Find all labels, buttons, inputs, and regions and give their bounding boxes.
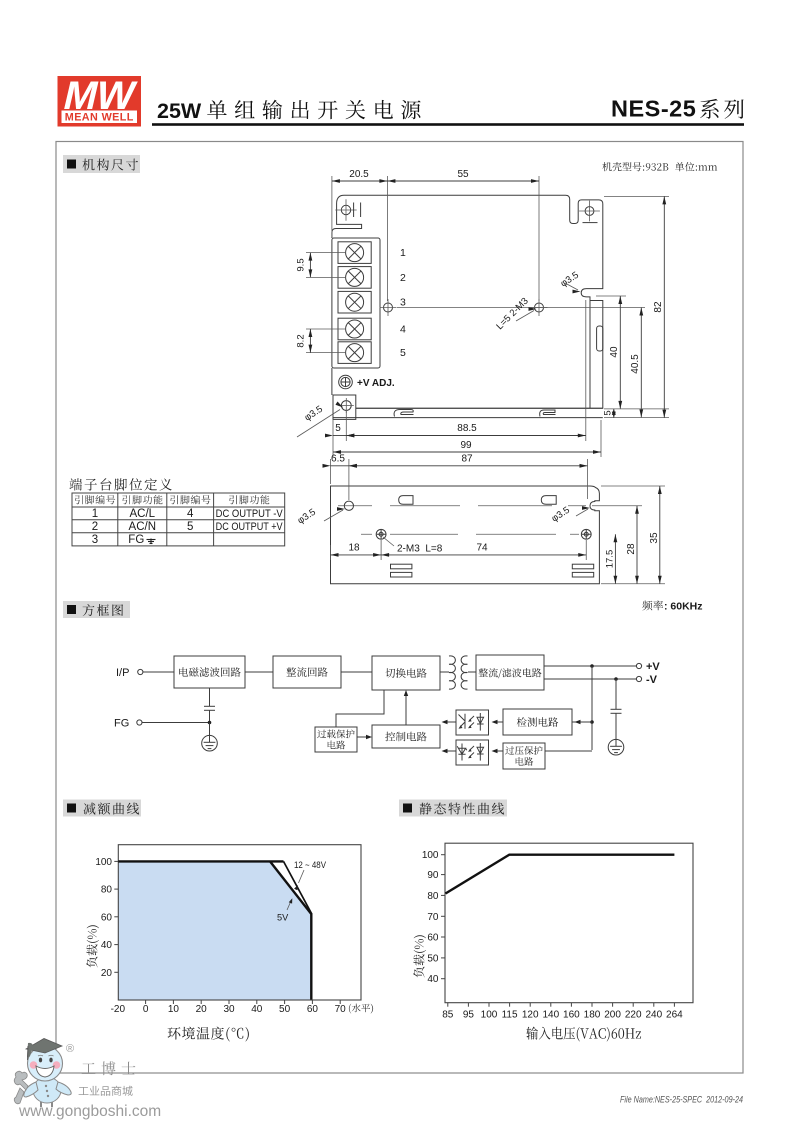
svg-text:90: 90 <box>427 870 439 881</box>
svg-text:20: 20 <box>101 968 113 979</box>
svg-text:60: 60 <box>101 912 113 923</box>
svg-text:85: 85 <box>442 1010 454 1021</box>
svg-text:17.5: 17.5 <box>604 550 615 569</box>
svg-text:40.5: 40.5 <box>630 354 641 374</box>
svg-text:95: 95 <box>463 1010 475 1021</box>
svg-text:2: 2 <box>92 521 98 533</box>
svg-text:50: 50 <box>279 1004 291 1015</box>
svg-text:87: 87 <box>461 454 473 465</box>
svg-text:File Name:NES-25-SPEC 2012-09: File Name:NES-25-SPEC 2012-09-24 <box>620 1095 743 1105</box>
svg-text:18: 18 <box>348 543 360 554</box>
svg-text:30: 30 <box>223 1004 235 1015</box>
svg-text:www.gongboshi.com: www.gongboshi.com <box>18 1103 161 1120</box>
svg-text:1: 1 <box>400 247 406 259</box>
svg-text:6.5: 6.5 <box>331 454 345 465</box>
svg-text:55: 55 <box>457 169 469 180</box>
svg-text:140: 140 <box>542 1010 559 1021</box>
svg-text:115: 115 <box>502 1010 518 1021</box>
svg-text:100: 100 <box>422 850 439 861</box>
svg-text:: 60KHz: : 60KHz <box>664 601 703 613</box>
svg-text:40: 40 <box>101 940 113 951</box>
svg-text:12 ~ 48V: 12 ~ 48V <box>294 860 327 870</box>
svg-text:220: 220 <box>625 1010 642 1021</box>
svg-text:50: 50 <box>427 953 439 964</box>
svg-text:AC/N: AC/N <box>129 521 156 533</box>
svg-text:88.5: 88.5 <box>457 423 477 434</box>
svg-text:®: ® <box>66 1043 74 1055</box>
svg-text:4: 4 <box>400 324 406 336</box>
svg-text:I/P: I/P <box>116 667 129 679</box>
svg-text:120: 120 <box>522 1010 539 1021</box>
svg-text:25W: 25W <box>157 99 202 123</box>
svg-text:DC OUTPUT -V: DC OUTPUT -V <box>216 508 284 520</box>
svg-text:40: 40 <box>427 974 439 985</box>
svg-text:100: 100 <box>481 1010 498 1021</box>
svg-text:3: 3 <box>92 534 98 546</box>
svg-text:5: 5 <box>187 521 193 533</box>
svg-text:240: 240 <box>645 1010 662 1021</box>
svg-text:35: 35 <box>649 532 660 544</box>
svg-text:2: 2 <box>400 272 406 284</box>
svg-text:10: 10 <box>168 1004 180 1015</box>
svg-text:180: 180 <box>584 1010 601 1021</box>
svg-text:200: 200 <box>604 1010 621 1021</box>
svg-text:9.5: 9.5 <box>296 258 307 271</box>
svg-text:74: 74 <box>476 543 488 554</box>
svg-text:264: 264 <box>666 1010 683 1021</box>
svg-text:+V ADJ.: +V ADJ. <box>357 378 395 389</box>
svg-text:28: 28 <box>626 543 637 555</box>
svg-text:60: 60 <box>427 933 439 944</box>
svg-text:82: 82 <box>653 301 664 313</box>
svg-text:20: 20 <box>196 1004 208 1015</box>
svg-text:60: 60 <box>307 1004 319 1015</box>
svg-text:99: 99 <box>460 440 472 451</box>
svg-text:80: 80 <box>427 891 439 902</box>
svg-text:100: 100 <box>95 857 112 868</box>
svg-text:5V: 5V <box>277 913 289 923</box>
svg-text:DC OUTPUT +V: DC OUTPUT +V <box>216 521 284 533</box>
svg-text:8.2: 8.2 <box>296 334 307 347</box>
svg-text:70: 70 <box>427 912 439 923</box>
svg-text:70: 70 <box>335 1004 347 1015</box>
svg-text:1: 1 <box>92 508 98 520</box>
svg-text:20.5: 20.5 <box>349 169 369 180</box>
svg-text:160: 160 <box>563 1010 580 1021</box>
svg-text:5: 5 <box>335 423 341 434</box>
svg-text:5: 5 <box>400 347 406 359</box>
svg-text:NES-25: NES-25 <box>611 96 696 122</box>
svg-text:0: 0 <box>143 1004 149 1015</box>
svg-text:FG: FG <box>128 534 144 546</box>
svg-text:40: 40 <box>609 346 620 358</box>
svg-text:+V: +V <box>646 661 660 673</box>
svg-text:AC/L: AC/L <box>130 508 156 520</box>
svg-text:40: 40 <box>251 1004 263 1015</box>
svg-text:-V: -V <box>646 674 658 686</box>
svg-text:-20: -20 <box>111 1004 126 1015</box>
svg-text:3: 3 <box>400 297 406 309</box>
svg-text:4: 4 <box>187 508 194 520</box>
svg-text:MEAN WELL: MEAN WELL <box>65 112 134 124</box>
svg-text:80: 80 <box>101 885 113 896</box>
svg-text:2-M3 L=8: 2-M3 L=8 <box>397 544 443 555</box>
svg-text:FG: FG <box>114 718 129 730</box>
